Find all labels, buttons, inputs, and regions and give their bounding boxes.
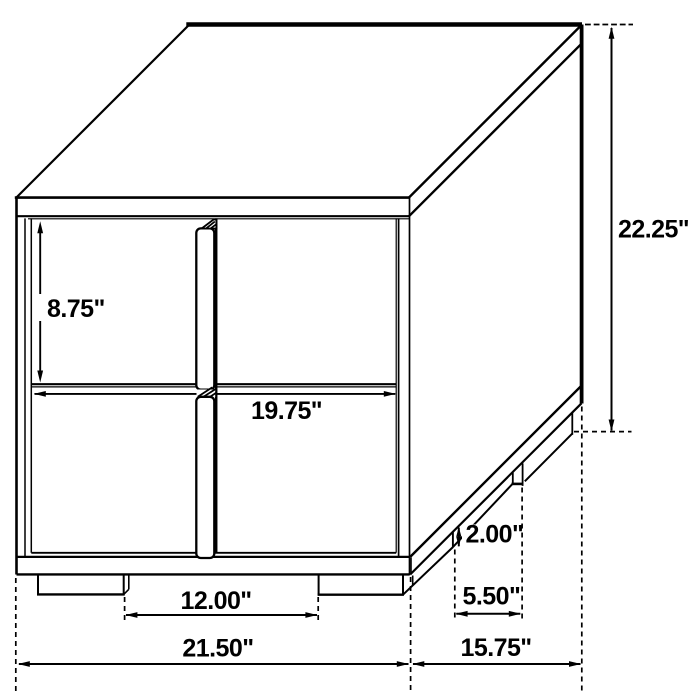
- svg-text:22.25": 22.25": [618, 216, 689, 244]
- svg-text:8.75": 8.75": [47, 295, 105, 323]
- svg-text:21.50": 21.50": [182, 635, 253, 663]
- svg-text:2.00": 2.00": [466, 521, 524, 549]
- svg-text:12.00": 12.00": [181, 587, 252, 615]
- svg-text:15.75": 15.75": [461, 634, 532, 662]
- svg-text:5.50": 5.50": [463, 582, 521, 610]
- svg-text:19.75": 19.75": [251, 397, 322, 425]
